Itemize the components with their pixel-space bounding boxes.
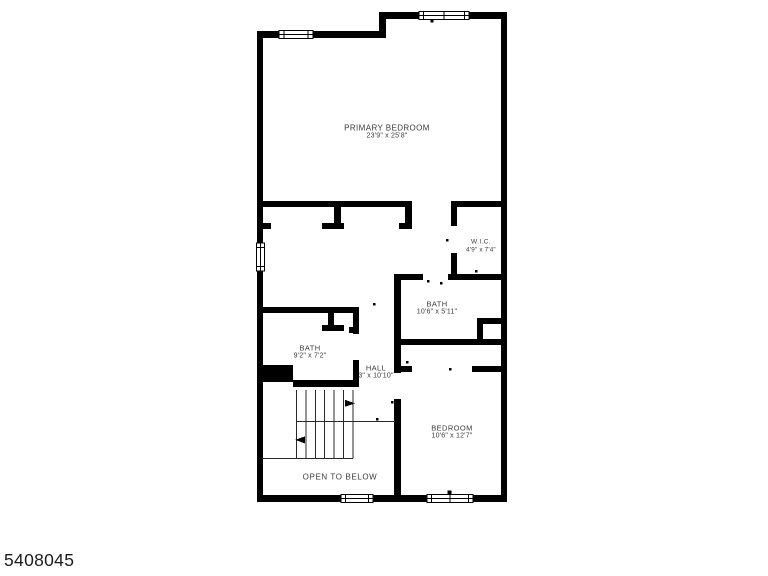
- bath-right-label: BATH 10'6" x 5'11": [417, 299, 457, 317]
- window-top-right: [419, 12, 469, 23]
- hall-name: HALL: [358, 363, 393, 372]
- chimney-block: [257, 365, 293, 382]
- wall-bedroom-closet-west: [394, 366, 412, 372]
- door-marker: [406, 361, 409, 364]
- floor-plan-drawing: [0, 0, 768, 576]
- door-marker: [449, 368, 452, 371]
- door-marker: [376, 418, 379, 421]
- door-marker: [440, 282, 443, 285]
- wall-closet-stub-left: [263, 223, 271, 229]
- wall-hall-east: [394, 274, 401, 373]
- wall-bath-north-east: [448, 274, 507, 280]
- window-tick: [448, 491, 452, 495]
- primary-bedroom-name: PRIMARY BEDROOM: [344, 123, 430, 132]
- window-top-left: [279, 31, 313, 39]
- wall-bath2-alcove-stub: [328, 313, 334, 327]
- wall-bath-south: [396, 339, 507, 345]
- wic-name: W.I.C.: [466, 239, 496, 247]
- window-tick: [431, 20, 434, 23]
- wall-wic-west-upper: [451, 207, 457, 226]
- door-marker: [475, 270, 478, 273]
- door-markers: [373, 239, 478, 421]
- bath-left-label: BATH 9'2" x 7'2": [294, 343, 327, 361]
- wall-wic-north: [451, 201, 501, 207]
- hall-label: HALL 3" x 10'10": [358, 363, 393, 381]
- listing-id: 5408045: [4, 550, 74, 571]
- wall-bath2-east-upper: [353, 307, 359, 334]
- bath-left-name: BATH: [294, 343, 327, 352]
- window-bottom-left: [341, 495, 373, 503]
- primary-bedroom-label: PRIMARY BEDROOM 23'9" x 25'8": [344, 123, 430, 141]
- wall-closet-stub-mid: [322, 223, 344, 229]
- wall-bedroom-west: [394, 399, 401, 495]
- primary-bedroom-dimensions: 23'9" x 25'8": [344, 132, 430, 141]
- wall-bedroom-closet-east: [472, 366, 507, 372]
- wall-closet-stub-right: [399, 223, 412, 229]
- open-to-below-label: OPEN TO BELOW: [303, 473, 378, 482]
- wall-top-left: [257, 31, 386, 38]
- floor-plan: PRIMARY BEDROOM 23'9" x 25'8" W.I.C. 4'9…: [0, 0, 768, 576]
- bedroom-dimensions: 10'6" x 12'7": [431, 432, 473, 441]
- bath-right-name: BATH: [417, 299, 457, 308]
- bedroom-label: BEDROOM 10'6" x 12'7": [431, 423, 473, 441]
- wall-wic-west-lower: [451, 253, 457, 274]
- open-to-below-text: OPEN TO BELOW: [303, 473, 378, 482]
- bath-left-dimensions: 9'2" x 7'2": [294, 352, 327, 361]
- door-marker: [391, 401, 394, 404]
- wall-bath2-south: [293, 380, 359, 387]
- bath-right-dimensions: 10'6" x 5'11": [417, 308, 457, 317]
- door-marker: [427, 280, 430, 283]
- window-left: [257, 243, 265, 271]
- wall-right: [501, 12, 507, 502]
- stairs: [263, 390, 396, 459]
- wic-label: W.I.C. 4'9" x 7'4": [466, 239, 496, 254]
- door-marker: [446, 239, 449, 242]
- wall-shower-west: [477, 318, 483, 345]
- window-bottom-right: [427, 491, 473, 503]
- hall-dimensions: 3" x 10'10": [358, 372, 393, 381]
- wall-bath2-alcove-foot-w: [322, 325, 344, 331]
- wic-dimensions: 4'9" x 7'4": [466, 246, 496, 254]
- wall-bath2-north: [263, 307, 359, 313]
- wall-closet-return: [405, 207, 412, 223]
- wall-primary-south: [263, 201, 412, 207]
- bedroom-name: BEDROOM: [431, 423, 473, 432]
- door-marker: [373, 303, 376, 306]
